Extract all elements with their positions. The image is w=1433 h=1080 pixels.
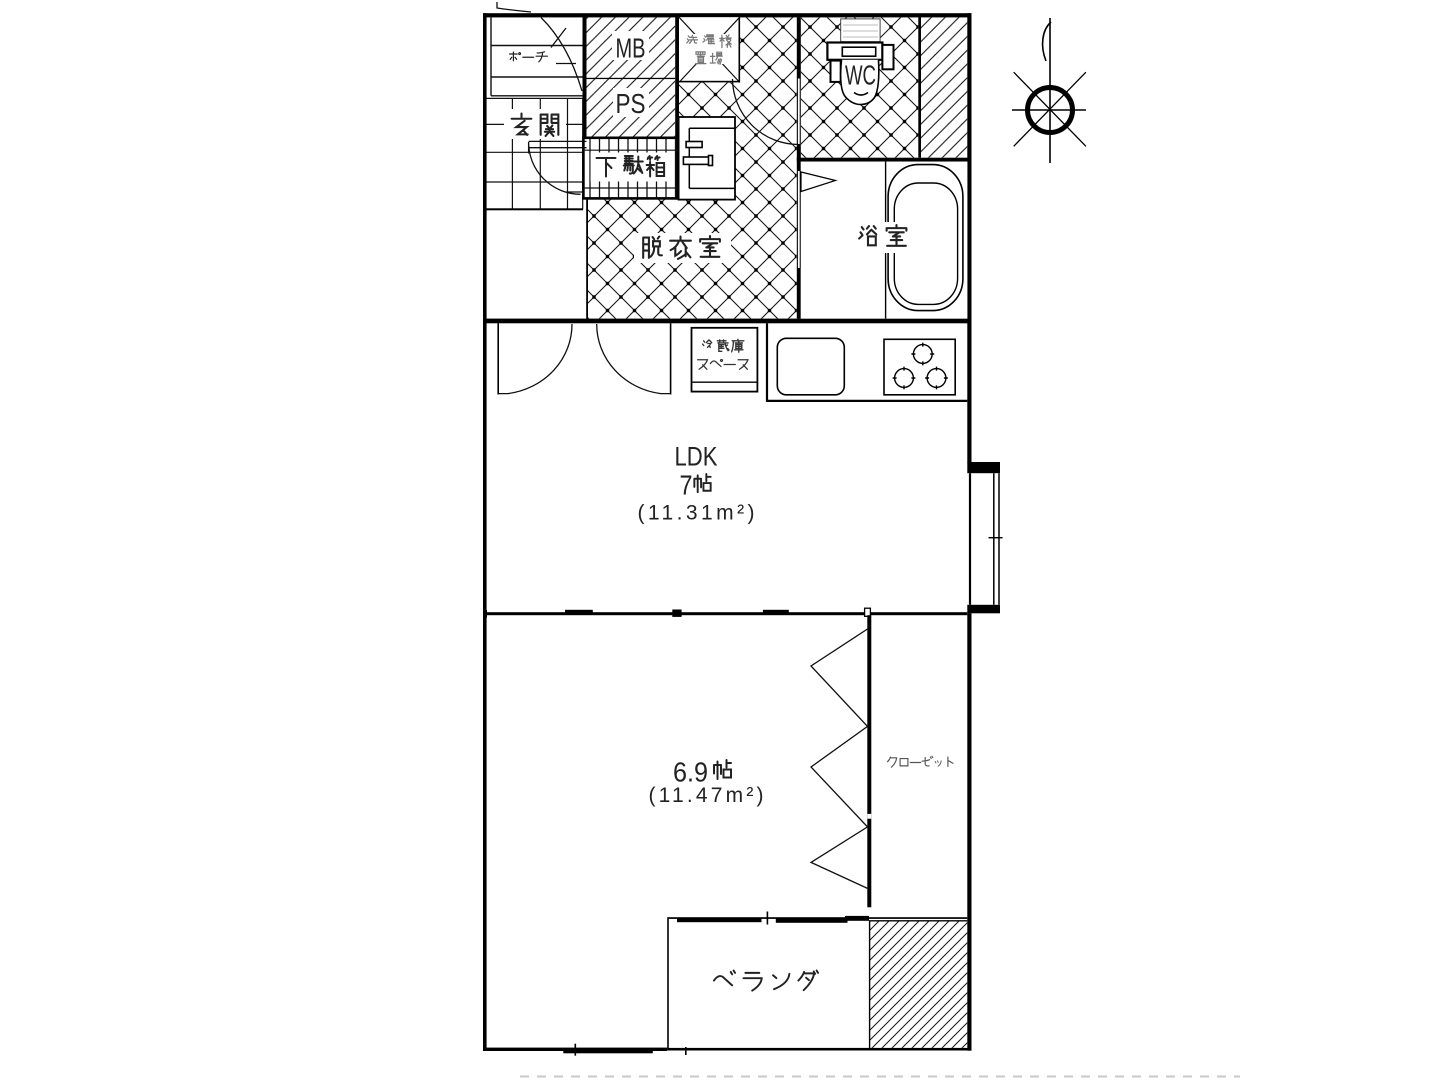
svg-text:7: 7 <box>680 470 693 501</box>
svg-text:(11.47m²): (11.47m²) <box>649 784 764 807</box>
svg-text:LDK: LDK <box>675 442 718 472</box>
svg-text:WC: WC <box>845 60 876 91</box>
svg-text:6.9: 6.9 <box>673 757 708 788</box>
svg-text:(11.31m²): (11.31m²) <box>638 502 755 525</box>
svg-text:MB: MB <box>616 33 646 64</box>
svg-text:PS: PS <box>616 88 646 119</box>
